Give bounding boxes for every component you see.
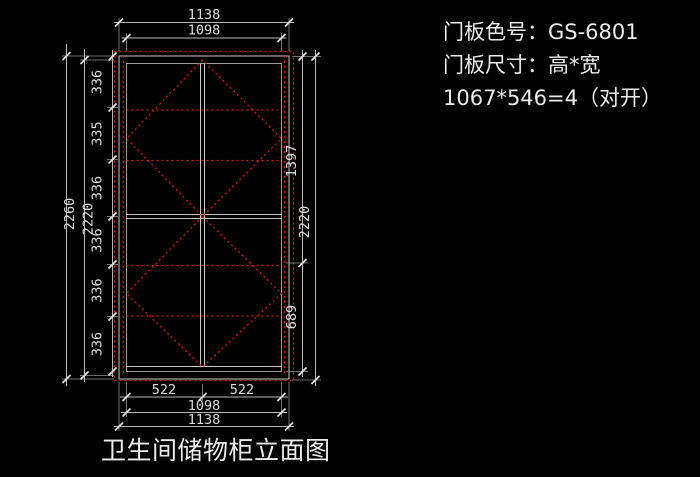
dim-bottom-outer: 1138	[188, 412, 221, 428]
note-door-color: 门板色号：GS-6801	[443, 16, 662, 49]
note-door-size-label: 门板尺寸：高*宽	[443, 49, 662, 82]
dim-left-outer: 2260	[62, 198, 78, 231]
dim-right-lower: 689	[284, 305, 300, 329]
dim-top-inner: 1098	[188, 23, 221, 39]
drawing-title: 卫生间储物柜立面图	[101, 431, 331, 467]
dim-chain-6: 336	[90, 332, 106, 356]
dim-chain-1: 336	[90, 70, 106, 94]
dim-right-upper: 1397	[284, 145, 300, 178]
note-door-size-value: 1067*546=4（对开）	[443, 82, 662, 115]
dim-chain-4: 336	[90, 228, 106, 252]
dim-chain-3: 336	[90, 176, 106, 200]
dim-right-overall: 2220	[297, 206, 313, 239]
dim-bottom-door-left: 522	[152, 382, 176, 398]
dim-chain-2: 335	[90, 121, 106, 145]
cad-canvas: 1138 1098 2260 2220 336 335 336 336 336 …	[0, 0, 700, 477]
dim-chain-5: 336	[90, 278, 106, 302]
dimension-labels: 1138 1098 2260 2220 336 335 336 336 336 …	[62, 7, 313, 428]
spec-notes: 门板色号：GS-6801 门板尺寸：高*宽 1067*546=4（对开）	[443, 16, 662, 115]
dim-top-outer: 1138	[188, 7, 221, 23]
dim-bottom-door-right: 522	[230, 382, 254, 398]
